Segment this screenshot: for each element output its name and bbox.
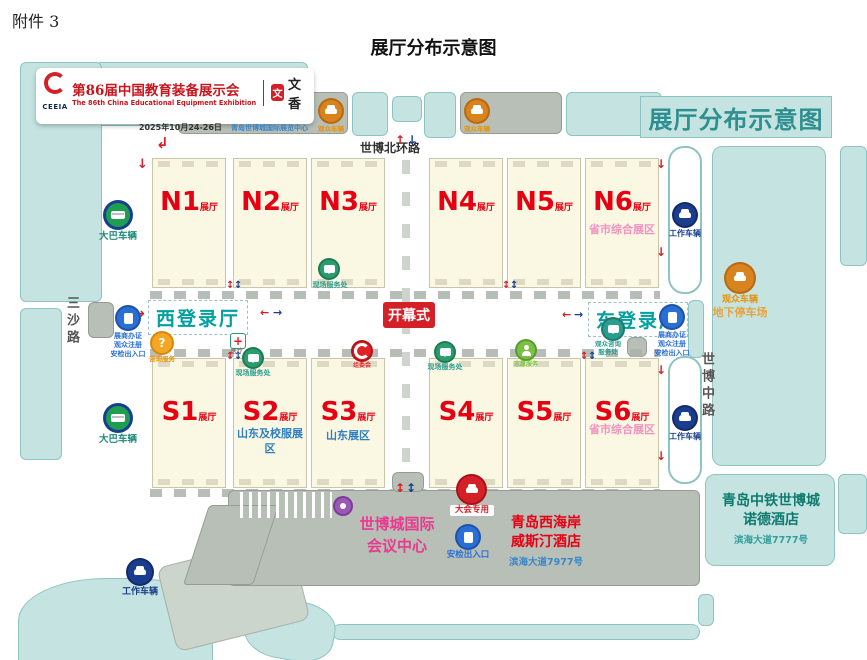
arrow-left-icon: ← bbox=[562, 309, 571, 320]
arrow-down-icon: ↓ bbox=[137, 158, 148, 171]
question-glyph-icon: ? bbox=[159, 336, 166, 350]
banner-title-cn: 第86届中国教育装备展示会 bbox=[72, 79, 256, 99]
road-connector-bottom bbox=[698, 594, 714, 626]
hall-N4-label: N4展厅 bbox=[430, 187, 502, 217]
hall-N6-note: 省市综合展区 bbox=[586, 223, 658, 238]
hall-N2-label: N2展厅 bbox=[234, 187, 306, 217]
conference-entrance-hatch bbox=[240, 492, 332, 518]
badge-glyph-icon bbox=[464, 532, 473, 543]
service-desk-icon bbox=[320, 260, 338, 278]
visitor-vehicle-icon bbox=[466, 100, 488, 122]
bus-glyph-icon bbox=[111, 414, 125, 422]
hall-N3-label: N3展厅 bbox=[312, 187, 384, 217]
security-entrance-icon bbox=[457, 526, 479, 548]
wenxiang-seal-icon: 文 bbox=[271, 84, 284, 101]
badge-glyph-icon bbox=[668, 312, 677, 323]
car-glyph-icon bbox=[134, 569, 146, 575]
hall-S4: S4展厅 bbox=[429, 358, 503, 488]
coach-vehicle-label: 大巴车辆 bbox=[94, 231, 142, 243]
hall-S3-label: S3展厅 bbox=[312, 397, 384, 427]
event-banner: CEEIA 第86届中国教育装备展示会 The 86th China Educa… bbox=[36, 68, 314, 124]
bus-glyph-icon bbox=[111, 211, 125, 219]
east-gate-label: 展商办证观众注册安检出入口 bbox=[646, 331, 698, 358]
bubble-glyph-icon bbox=[248, 354, 259, 362]
banner-divider bbox=[263, 80, 264, 106]
coach-vehicle-label: 大巴车辆 bbox=[94, 434, 142, 446]
hall-S3-note: 山东展区 bbox=[312, 429, 384, 444]
registration-gate-icon bbox=[117, 307, 139, 329]
registration-gate-icon bbox=[661, 306, 683, 328]
hall-S5-label: S5展厅 bbox=[508, 397, 580, 427]
hall-N2: N2展厅 bbox=[233, 158, 307, 288]
staff-vehicle-label: 工作车辆 bbox=[662, 432, 708, 442]
arrow-elbow-icon: ↲ bbox=[156, 136, 169, 151]
road-block-north-2 bbox=[392, 96, 422, 122]
road-label-west: 三沙路 bbox=[62, 296, 81, 347]
committee-icon bbox=[353, 342, 371, 360]
conference-vehicle-label: 大会专用 bbox=[450, 505, 494, 516]
hall-N5-label: N5展厅 bbox=[508, 187, 580, 217]
road-block-north-1 bbox=[352, 92, 388, 136]
badge-glyph-icon bbox=[124, 313, 133, 324]
hall-S2-label: S2展厅 bbox=[234, 397, 306, 427]
road-block-hotel-edge bbox=[838, 474, 867, 534]
arrow-down-icon: ↓ bbox=[656, 450, 666, 462]
arrow-updown-icon: ↕ bbox=[395, 482, 405, 494]
event-venue: 青岛世博城国际展览中心 bbox=[231, 124, 308, 132]
hall-S1: S1展厅 bbox=[152, 358, 226, 488]
visitor-vehicle-label: 观众车辆 bbox=[306, 125, 356, 133]
banner-titles: 第86届中国教育装备展示会 The 86th China Educational… bbox=[72, 79, 256, 107]
person-glyph-icon bbox=[524, 345, 529, 350]
hall-N4: N4展厅 bbox=[429, 158, 503, 288]
ceeia-org-text: CEEIA bbox=[42, 103, 67, 111]
medical-label: 医疗 bbox=[228, 348, 246, 356]
service-desk-label: 现场服务处 bbox=[310, 281, 350, 290]
volunteer-icon bbox=[517, 341, 535, 359]
car-glyph-icon bbox=[466, 487, 478, 493]
hall-S6-note: 省市综合展区 bbox=[586, 423, 658, 438]
car-glyph-icon bbox=[679, 212, 691, 218]
arrow-down-icon: ↓ bbox=[656, 364, 666, 376]
bubble-glyph-icon bbox=[440, 348, 451, 356]
visitor-vehicle-icon bbox=[320, 100, 342, 122]
westin-hotel-name: 青岛西海岸 威斯汀酒店 滨海大道7977号 bbox=[498, 514, 594, 568]
arrow-right-icon: → bbox=[273, 307, 282, 318]
nord-hotel-address: 滨海大道7777号 bbox=[706, 532, 836, 546]
bubble-glyph-icon bbox=[324, 265, 335, 273]
ceeia-logo-icon: CEEIA bbox=[42, 72, 68, 113]
service-desk-icon bbox=[436, 343, 454, 361]
staff-vehicle-label: 工作车辆 bbox=[662, 229, 708, 239]
visitor-service-icon bbox=[603, 319, 623, 339]
banner-row-date: 2025年10月24-26日 青岛世博城国际展览中心 bbox=[42, 115, 308, 134]
conference-vehicle-icon bbox=[458, 476, 485, 503]
westin-hotel-address: 滨海大道7977号 bbox=[498, 554, 594, 568]
hall-N6: N6展厅 省市综合展区 bbox=[585, 158, 659, 288]
cross-glyph-icon: + bbox=[233, 335, 243, 347]
road-bar-bottom bbox=[332, 624, 700, 640]
hall-N1: N1展厅 bbox=[152, 158, 226, 288]
visitor-service-label: 观众咨询服务处 bbox=[588, 340, 628, 357]
vip-icon bbox=[335, 498, 351, 514]
info-desk-label: 咨询服务 bbox=[145, 355, 179, 363]
hall-S2-note: 山东及校服展区 bbox=[234, 427, 306, 457]
partner-name: 文香 bbox=[288, 74, 308, 112]
car-glyph-icon bbox=[679, 415, 691, 421]
road-label-east: 世博中路 bbox=[697, 352, 716, 420]
ceeia-ring-glyph-icon bbox=[44, 72, 66, 94]
visitor-vehicle-label: 观众车辆 bbox=[712, 295, 768, 307]
nord-hotel-name: 青岛中铁世博城 诺德酒店 滨海大道7777号 bbox=[706, 492, 836, 546]
visitor-vehicle-label: 观众车辆 bbox=[452, 125, 502, 133]
arrow-down-icon: ↓ bbox=[656, 246, 666, 258]
info-desk-icon: ? bbox=[152, 333, 172, 353]
arrow-updown-icon: ↕ bbox=[406, 482, 416, 494]
underground-parking-label: 地下停车场 bbox=[705, 306, 775, 320]
dot-glyph-icon bbox=[340, 503, 346, 509]
ring-glyph-icon bbox=[354, 343, 370, 359]
event-date: 2025年10月24-26日 bbox=[139, 123, 222, 132]
corner-title-block: 展厅分布示意图 bbox=[640, 96, 832, 138]
staff-vehicle-icon bbox=[128, 560, 152, 584]
arrow-updown-icon: ↕ bbox=[234, 281, 242, 291]
hall-S1-label: S1展厅 bbox=[153, 397, 225, 427]
conference-center-name: 世博城国际 会议中心 bbox=[349, 514, 445, 558]
bubble-glyph-icon bbox=[608, 325, 619, 333]
coach-vehicle-icon bbox=[106, 203, 130, 227]
corner-title: 展厅分布示意图 bbox=[649, 100, 824, 135]
hall-N5: N5展厅 bbox=[507, 158, 581, 288]
road-block-west-lower bbox=[20, 308, 62, 460]
opening-ceremony-box: 开幕式 bbox=[383, 302, 435, 328]
arrow-down-icon: ↓ bbox=[656, 158, 666, 170]
car-glyph-icon bbox=[325, 108, 337, 114]
arrow-down-icon: ↓ bbox=[407, 134, 417, 146]
hall-S3: S3展厅 山东展区 bbox=[311, 358, 385, 488]
car-glyph-icon bbox=[734, 275, 746, 281]
arrow-up-icon: ↑ bbox=[395, 134, 405, 146]
road-block-east-edge bbox=[840, 146, 867, 266]
banner-title-en: The 86th China Educational Equipment Exh… bbox=[72, 99, 256, 107]
car-glyph-icon bbox=[471, 108, 483, 114]
arrow-right-icon: → bbox=[574, 309, 583, 320]
visitor-vehicle-icon bbox=[726, 264, 754, 292]
banner-row-main: CEEIA 第86届中国教育装备展示会 The 86th China Educa… bbox=[42, 72, 308, 113]
hall-S4-label: S4展厅 bbox=[430, 397, 502, 427]
staff-vehicle-label: 工作车辆 bbox=[116, 587, 164, 599]
volunteer-label: 志愿服务 bbox=[511, 361, 541, 369]
arrow-left-icon: ← bbox=[260, 307, 269, 318]
medical-icon: + bbox=[230, 333, 246, 349]
staff-vehicle-icon bbox=[674, 204, 696, 226]
exhibition-map-page: 附件 3 展厅分布示意图 展厅分布示意图 世博北环路 三沙路 世博中路 N1展厅… bbox=[0, 0, 867, 660]
attachment-label: 附件 3 bbox=[12, 8, 59, 32]
west-registration-hall: 西登录厅 bbox=[148, 300, 248, 335]
hall-S5: S5展厅 bbox=[507, 358, 581, 488]
hall-N6-label: N6展厅 bbox=[586, 187, 658, 217]
service-desk-label: 现场服务处 bbox=[233, 369, 273, 378]
arrow-updown-icon: ↕ bbox=[510, 281, 518, 291]
service-desk-icon bbox=[244, 349, 262, 367]
hall-N1-label: N1展厅 bbox=[153, 187, 225, 217]
service-desk-label: 现场服务处 bbox=[425, 363, 465, 372]
staff-vehicle-icon bbox=[674, 407, 696, 429]
security-entrance-label: 安检出入口 bbox=[442, 550, 494, 561]
committee-label: 组委会 bbox=[350, 362, 374, 370]
page-title: 展厅分布示意图 bbox=[0, 34, 867, 60]
coach-vehicle-icon bbox=[106, 406, 130, 430]
hall-S6: S6展厅 省市综合展区 bbox=[585, 358, 659, 488]
